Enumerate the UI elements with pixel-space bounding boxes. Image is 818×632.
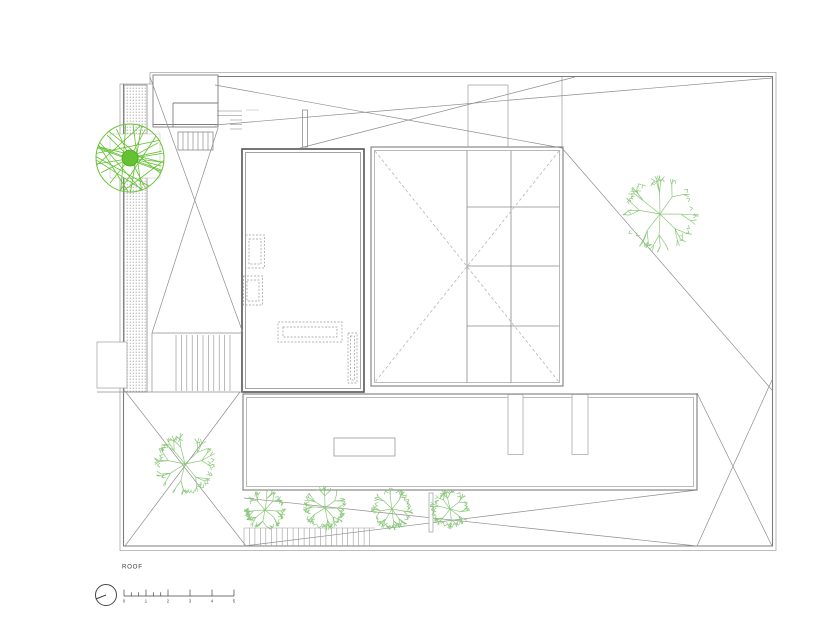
tree-branches bbox=[155, 433, 215, 495]
scale-bar-label: 2 bbox=[167, 599, 170, 604]
scale-bar-label: 0 bbox=[123, 599, 126, 604]
terrace-outer bbox=[243, 394, 697, 490]
ridge-line-right-lower bbox=[697, 393, 772, 546]
upper-left-volume bbox=[153, 75, 308, 150]
scale-bar-label: 5 bbox=[233, 599, 236, 604]
tree-trunk-dot bbox=[122, 150, 138, 166]
main-roof-volume bbox=[242, 149, 364, 392]
tree-branches bbox=[371, 488, 413, 530]
roof-plan-canvas: ROOF 012345 bbox=[0, 0, 818, 632]
ridge-line-top bbox=[300, 77, 575, 148]
north-needle bbox=[96, 595, 106, 599]
title-block: ROOF 012345 bbox=[96, 564, 236, 606]
tree-row-4 bbox=[430, 489, 470, 529]
scale-bar-label: 4 bbox=[211, 599, 214, 604]
ridge-line-left-lower bbox=[125, 392, 240, 546]
tree-lower-left bbox=[155, 433, 215, 495]
ridge-line-right bbox=[562, 148, 772, 390]
tread-lines bbox=[183, 132, 208, 150]
ridge-line-left-lower bbox=[125, 391, 246, 546]
scale-bar-ticks bbox=[124, 590, 234, 597]
tree-right bbox=[623, 175, 699, 252]
tree-branches bbox=[430, 489, 470, 529]
terrace-slot bbox=[572, 395, 588, 455]
stair-mid-treads bbox=[176, 335, 230, 391]
ridge-line-bottom bbox=[244, 498, 697, 546]
scale-bar: 012345 bbox=[123, 590, 236, 604]
tread-lines bbox=[176, 335, 230, 391]
left-landing bbox=[97, 333, 243, 392]
deck-treads bbox=[244, 528, 370, 546]
room-outline bbox=[153, 75, 218, 127]
strip-fill bbox=[124, 85, 147, 392]
ridge-line-left bbox=[152, 128, 218, 333]
scale-bar-label: 1 bbox=[145, 599, 148, 604]
drawing-title: ROOF bbox=[122, 564, 143, 571]
entry-steps bbox=[217, 111, 242, 129]
terrace-volume bbox=[243, 394, 697, 546]
ridge-line-top bbox=[215, 85, 562, 148]
tree-branches bbox=[244, 489, 286, 529]
tread-lines bbox=[244, 528, 370, 546]
chimney bbox=[303, 110, 308, 147]
tree-branches bbox=[623, 175, 699, 252]
ridge-line-right-lower bbox=[697, 380, 772, 546]
stair-upper-treads bbox=[183, 132, 208, 150]
main-room-outer bbox=[242, 149, 364, 392]
terrace-slot bbox=[508, 395, 523, 455]
north-symbol bbox=[96, 585, 117, 606]
tree-row-3 bbox=[371, 488, 413, 530]
scale-bar-label: 3 bbox=[189, 599, 192, 604]
grid-roof-volume bbox=[371, 77, 563, 386]
garden-wall-bar bbox=[429, 493, 433, 532]
roof-plan-sheet: ROOF 012345 bbox=[0, 0, 818, 632]
grid-roof-shaft bbox=[468, 77, 562, 147]
tree-row-1 bbox=[244, 489, 286, 529]
side-box bbox=[97, 342, 127, 388]
